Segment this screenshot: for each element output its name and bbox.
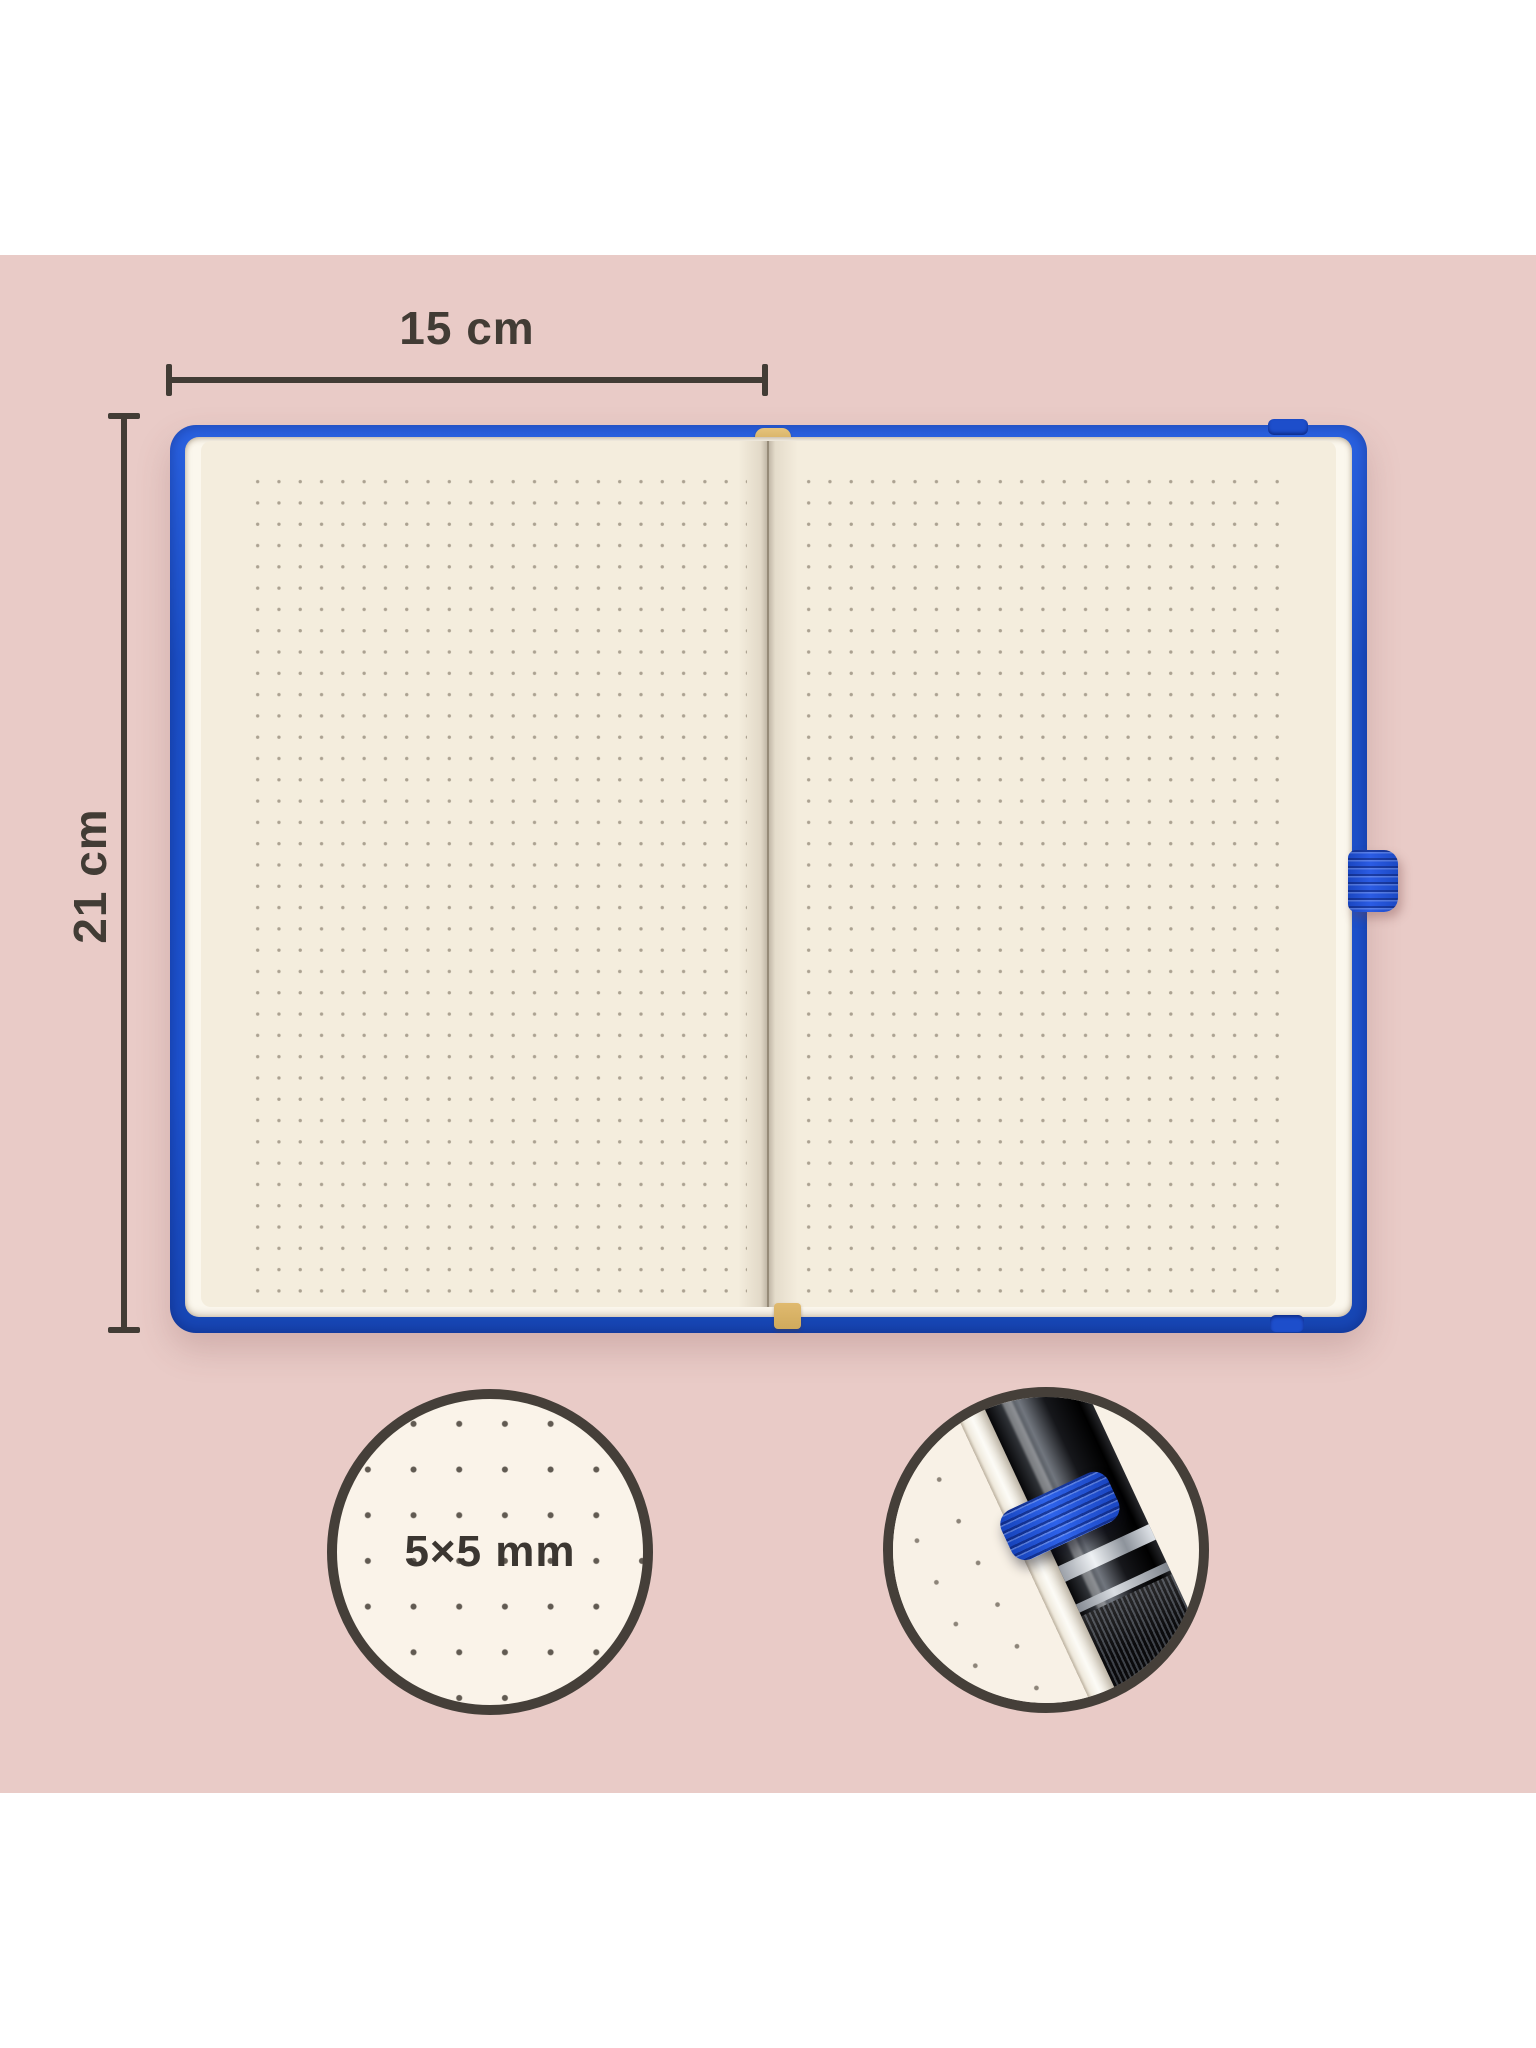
- width-dimension-line: [166, 377, 768, 383]
- page-block: [185, 437, 1352, 1317]
- elastic-band-tab-top: [1268, 419, 1308, 435]
- pen-loop-callout: [883, 1387, 1209, 1713]
- dot-grid-callout: 5×5 mm: [327, 1389, 653, 1715]
- elastic-band-tab-bottom: [1270, 1315, 1304, 1332]
- pen-loop-closeup-scene: [883, 1387, 1209, 1713]
- height-dimension-label: 21 cm: [63, 808, 117, 943]
- product-image: 15 cm 21 cm 5×5 mm: [0, 0, 1536, 2048]
- width-dimension-label: 15 cm: [166, 296, 768, 360]
- open-pages: [201, 441, 1336, 1307]
- height-dimension-line: [121, 413, 127, 1333]
- page-gutter: [738, 441, 798, 1307]
- dot-grid-right-page: [798, 471, 1290, 1295]
- dot-grid-spacing-label: 5×5 mm: [337, 1399, 643, 1705]
- pen-loop: [1348, 850, 1398, 912]
- dot-grid-left-page: [247, 471, 747, 1295]
- notebook: [170, 425, 1367, 1333]
- bookmark-ribbon-bottom: [774, 1303, 801, 1329]
